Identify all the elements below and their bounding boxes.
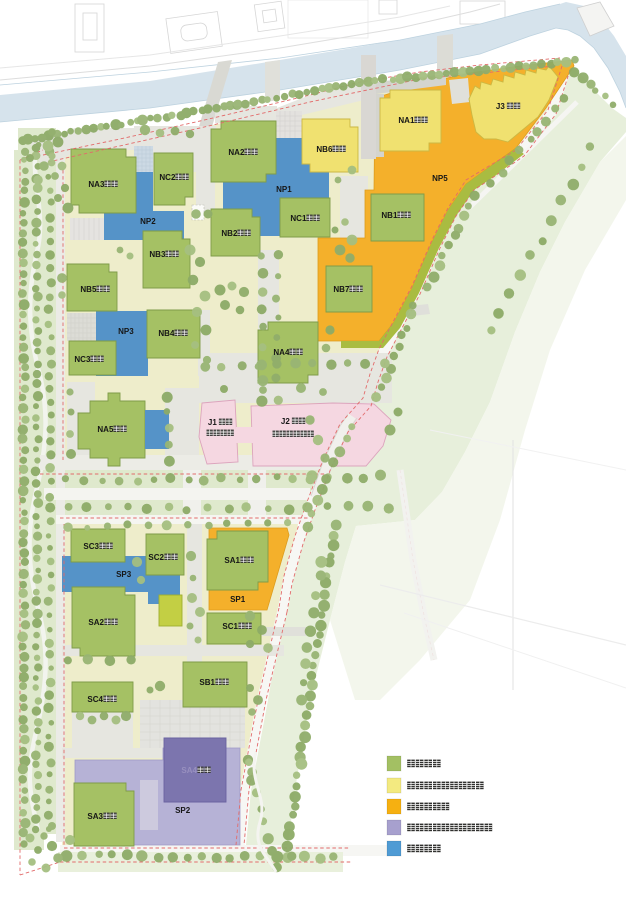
svg-text:SP2: SP2: [175, 806, 191, 815]
svg-text:NP3: NP3: [118, 327, 134, 336]
svg-text:J3: J3: [496, 102, 505, 111]
svg-text:NB6: NB6: [316, 145, 333, 154]
svg-text:SC2: SC2: [148, 553, 164, 562]
svg-text:NP5: NP5: [432, 174, 448, 183]
svg-text:SC3: SC3: [83, 542, 99, 551]
svg-text:NB7: NB7: [333, 285, 350, 294]
svg-text:SA2: SA2: [88, 618, 104, 627]
svg-text:NB3: NB3: [149, 250, 166, 259]
svg-text:SA4: SA4: [181, 766, 197, 775]
svg-text:NP1: NP1: [276, 185, 292, 194]
svg-text:SB1: SB1: [199, 678, 215, 687]
svg-text:NB5: NB5: [80, 285, 97, 294]
svg-text:SC4: SC4: [87, 695, 103, 704]
svg-text:NA1: NA1: [398, 116, 415, 125]
svg-text:J1: J1: [208, 418, 217, 427]
svg-text:J2: J2: [281, 417, 290, 426]
svg-text:NC1: NC1: [290, 214, 307, 223]
svg-text:SP1: SP1: [230, 595, 246, 604]
svg-text:NP2: NP2: [140, 217, 156, 226]
svg-text:NB2: NB2: [221, 229, 238, 238]
svg-text:NB1: NB1: [381, 211, 398, 220]
svg-text:NA3: NA3: [88, 180, 105, 189]
svg-text:NB4: NB4: [158, 329, 175, 338]
svg-text:NA2: NA2: [228, 148, 245, 157]
svg-text:NC2: NC2: [159, 173, 176, 182]
svg-text:SP3: SP3: [116, 570, 132, 579]
svg-text:SC1: SC1: [222, 622, 238, 631]
svg-text:SA3: SA3: [87, 812, 103, 821]
svg-text:SA1: SA1: [224, 556, 240, 565]
svg-text:NA5: NA5: [97, 425, 114, 434]
svg-text:NC3: NC3: [74, 355, 91, 364]
svg-text:NA4: NA4: [273, 348, 290, 357]
